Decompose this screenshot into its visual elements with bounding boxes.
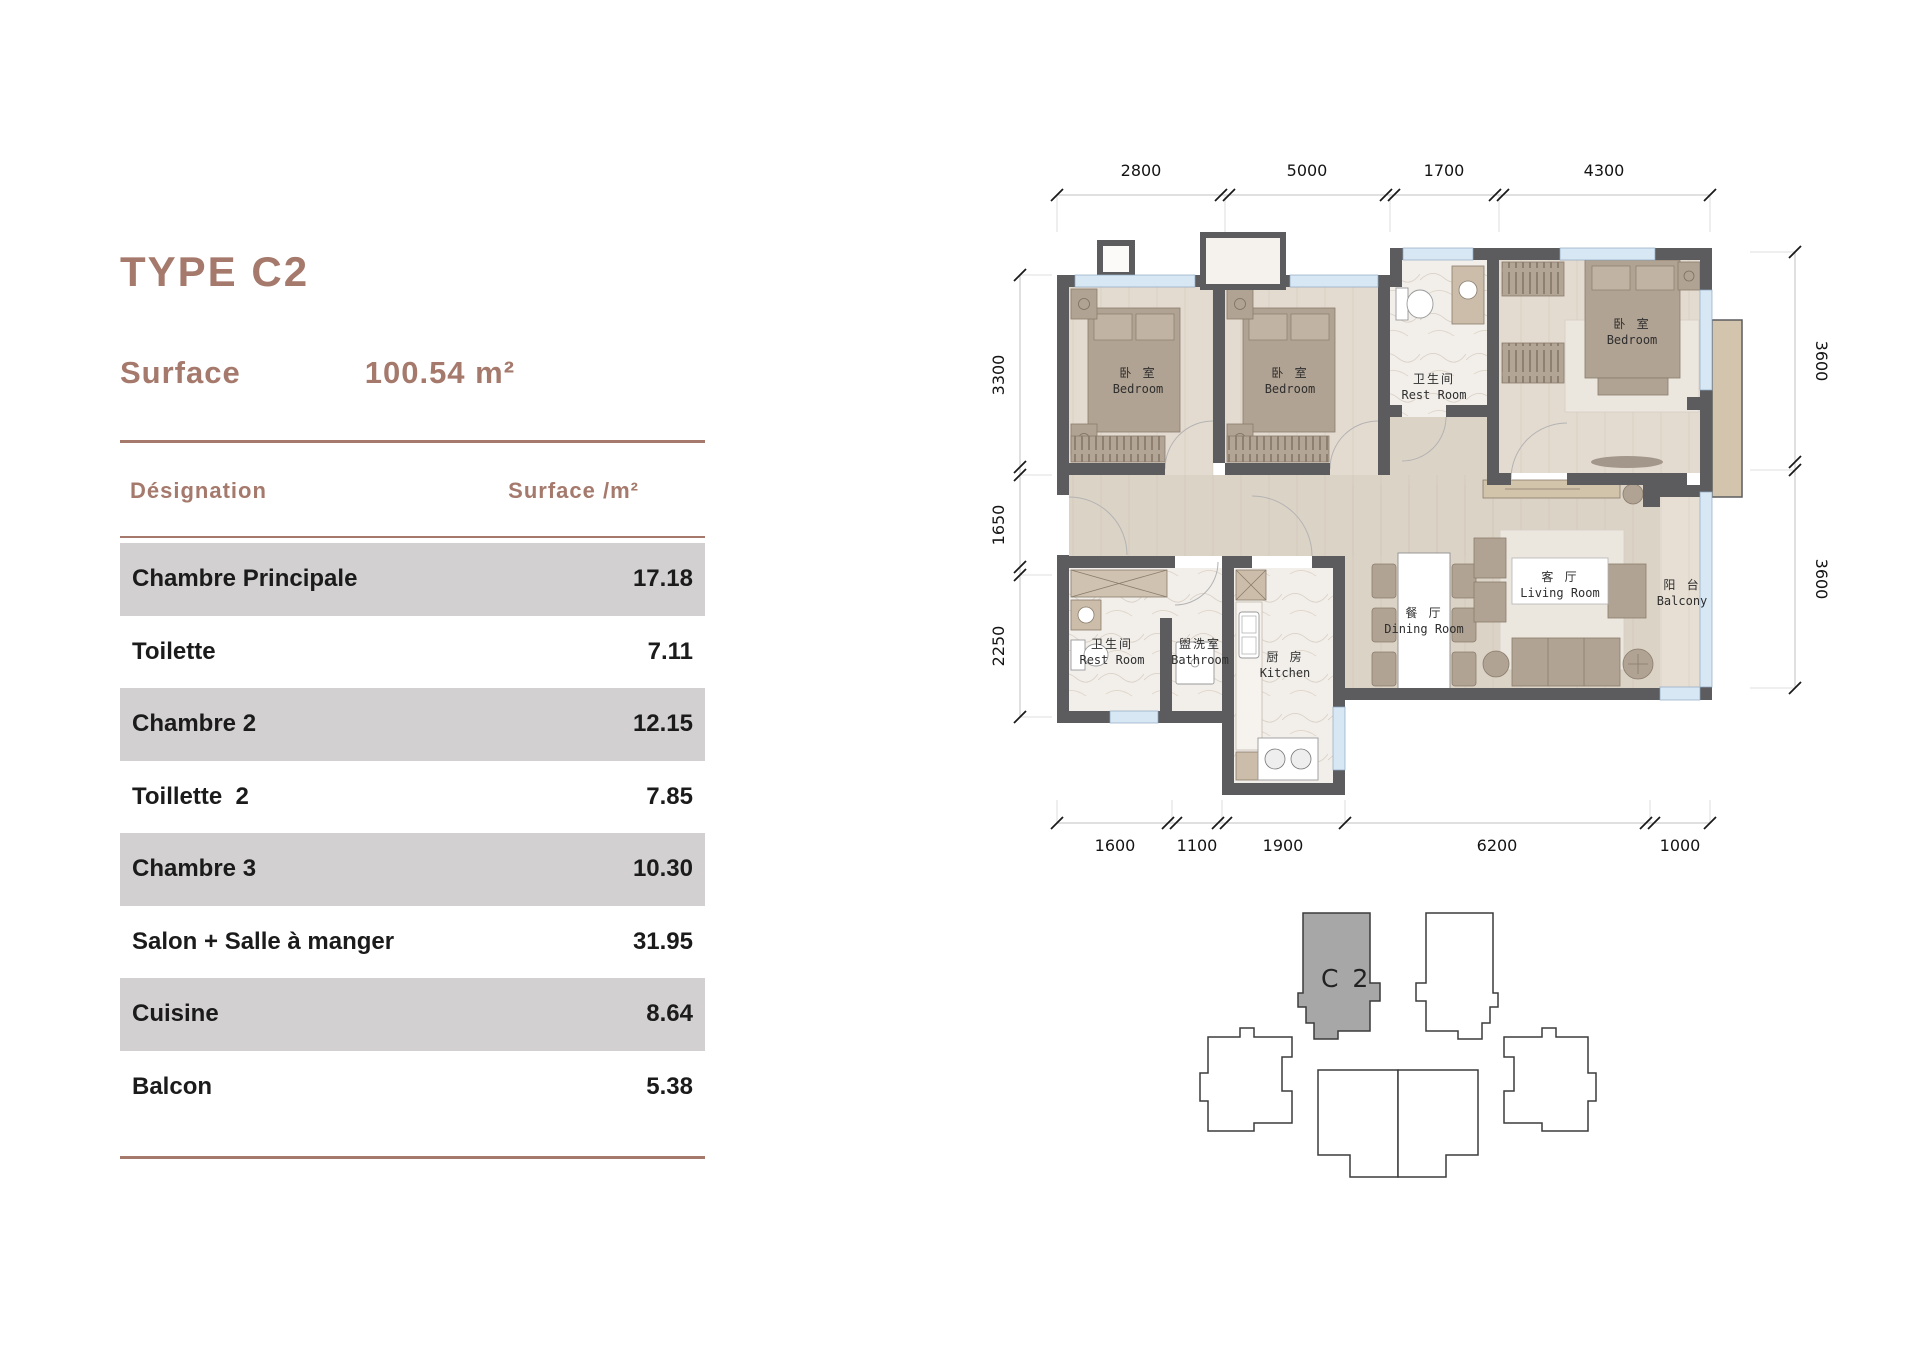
table-row: Toilette 7.11 xyxy=(120,616,705,689)
dimension-label: 3600 xyxy=(1812,559,1831,600)
dimension-label: 1600 xyxy=(1095,836,1136,855)
dimension-label: 3300 xyxy=(989,355,1008,396)
row-value: 10.30 xyxy=(633,855,693,883)
key-plan-right-wing xyxy=(1504,1028,1596,1131)
row-label: Toillette 2 xyxy=(132,783,249,811)
svg-text:Bathroom: Bathroom xyxy=(1171,653,1229,667)
chimney-shaft xyxy=(1100,243,1132,275)
svg-text:Bedroom: Bedroom xyxy=(1265,382,1316,396)
dimension-label: 1100 xyxy=(1177,836,1218,855)
room-label-master: 卧 室 xyxy=(1613,316,1650,331)
row-label: Toilette xyxy=(132,638,216,666)
dimension-label: 3600 xyxy=(1812,341,1831,382)
surface-table: Chambre Principale 17.18 Toilette 7.11 C… xyxy=(120,543,705,1123)
dimension-label: 1700 xyxy=(1424,161,1465,180)
room-label-living: 客 厅 xyxy=(1541,569,1578,584)
row-value: 31.95 xyxy=(633,928,693,956)
dimension-label: 2250 xyxy=(989,626,1008,667)
room-label-bedroom2: 卧 室 xyxy=(1271,365,1308,380)
room-label-kitchen: 厨 房 xyxy=(1266,649,1303,664)
key-plan-left-wing xyxy=(1200,1028,1292,1131)
svg-text:Dining Room: Dining Room xyxy=(1384,622,1463,636)
svg-text:Balcony: Balcony xyxy=(1657,594,1708,608)
row-value: 5.38 xyxy=(646,1073,693,1101)
room-label-dining: 餐 厅 xyxy=(1405,605,1442,620)
table-row: Balcon 5.38 xyxy=(120,1051,705,1124)
row-label: Cuisine xyxy=(132,1000,219,1028)
row-label: Balcon xyxy=(132,1073,212,1101)
dimension-label: 6200 xyxy=(1477,836,1518,855)
room-label-bathroom: 盥洗室 xyxy=(1179,636,1221,651)
row-label: Salon + Salle à manger xyxy=(132,928,394,956)
surface-summary: Surface 100.54 m² xyxy=(120,355,705,391)
key-plan: C 2 xyxy=(1180,905,1620,1195)
table-row: Toillette 2 7.85 xyxy=(120,761,705,834)
divider xyxy=(120,1156,705,1159)
dimension-label: 5000 xyxy=(1287,161,1328,180)
room-label-bedroom1: 卧 室 xyxy=(1119,365,1156,380)
dimension-label: 1000 xyxy=(1660,836,1701,855)
duct-shaft xyxy=(1203,235,1283,287)
surface-label: Surface xyxy=(120,355,241,391)
table-row: Chambre Principale 17.18 xyxy=(120,543,705,616)
table-row: Chambre 3 10.30 xyxy=(120,833,705,906)
key-plan-right-tower xyxy=(1416,913,1498,1039)
table-header: Désignation Surface /m² xyxy=(120,478,705,504)
row-label: Chambre 2 xyxy=(132,710,256,738)
room-label-restroom2: 卫生间 xyxy=(1091,637,1133,651)
dimension-label: 4300 xyxy=(1584,161,1625,180)
room-label-restroom-top: 卫生间 xyxy=(1413,372,1455,386)
row-value: 12.15 xyxy=(633,710,693,738)
row-value: 8.64 xyxy=(646,1000,693,1028)
svg-text:Rest Room: Rest Room xyxy=(1079,653,1144,667)
key-plan-bottom-left-unit xyxy=(1318,1070,1398,1177)
page-title: TYPE C2 xyxy=(120,248,309,296)
svg-text:Rest Room: Rest Room xyxy=(1401,388,1466,402)
dimension-label: 1900 xyxy=(1263,836,1304,855)
table-row: Cuisine 8.64 xyxy=(120,978,705,1051)
table-row: Chambre 2 12.15 xyxy=(120,688,705,761)
table-row: Salon + Salle à manger 31.95 xyxy=(120,906,705,979)
row-label: Chambre Principale xyxy=(132,565,357,593)
row-value: 7.11 xyxy=(648,638,693,666)
room-label-balcony: 阳 台 xyxy=(1663,577,1700,592)
column-surface: Surface /m² xyxy=(508,478,639,504)
divider xyxy=(120,536,705,538)
key-plan-unit-label: C 2 xyxy=(1321,964,1371,993)
ac-ledge xyxy=(1712,320,1742,497)
column-designation: Désignation xyxy=(120,478,267,504)
svg-text:Living Room: Living Room xyxy=(1520,586,1599,600)
svg-text:Bedroom: Bedroom xyxy=(1607,333,1658,347)
row-value: 17.18 xyxy=(633,565,693,593)
row-label: Chambre 3 xyxy=(132,855,256,883)
svg-text:Bedroom: Bedroom xyxy=(1113,382,1164,396)
dimension-label: 2800 xyxy=(1121,161,1162,180)
svg-text:Kitchen: Kitchen xyxy=(1260,666,1311,680)
divider xyxy=(120,440,705,443)
row-value: 7.85 xyxy=(646,783,693,811)
surface-value: 100.54 m² xyxy=(365,355,515,391)
floorplan-sheet: TYPE C2 Surface 100.54 m² Désignation Su… xyxy=(0,0,1920,1371)
dimension-label: 1650 xyxy=(989,505,1008,546)
floor-plan: 卧 室 Bedroom 卧 室 Bedroom 卫生间 Rest Room 卧 … xyxy=(960,140,1860,900)
key-plan-bottom-right-unit xyxy=(1398,1070,1478,1177)
